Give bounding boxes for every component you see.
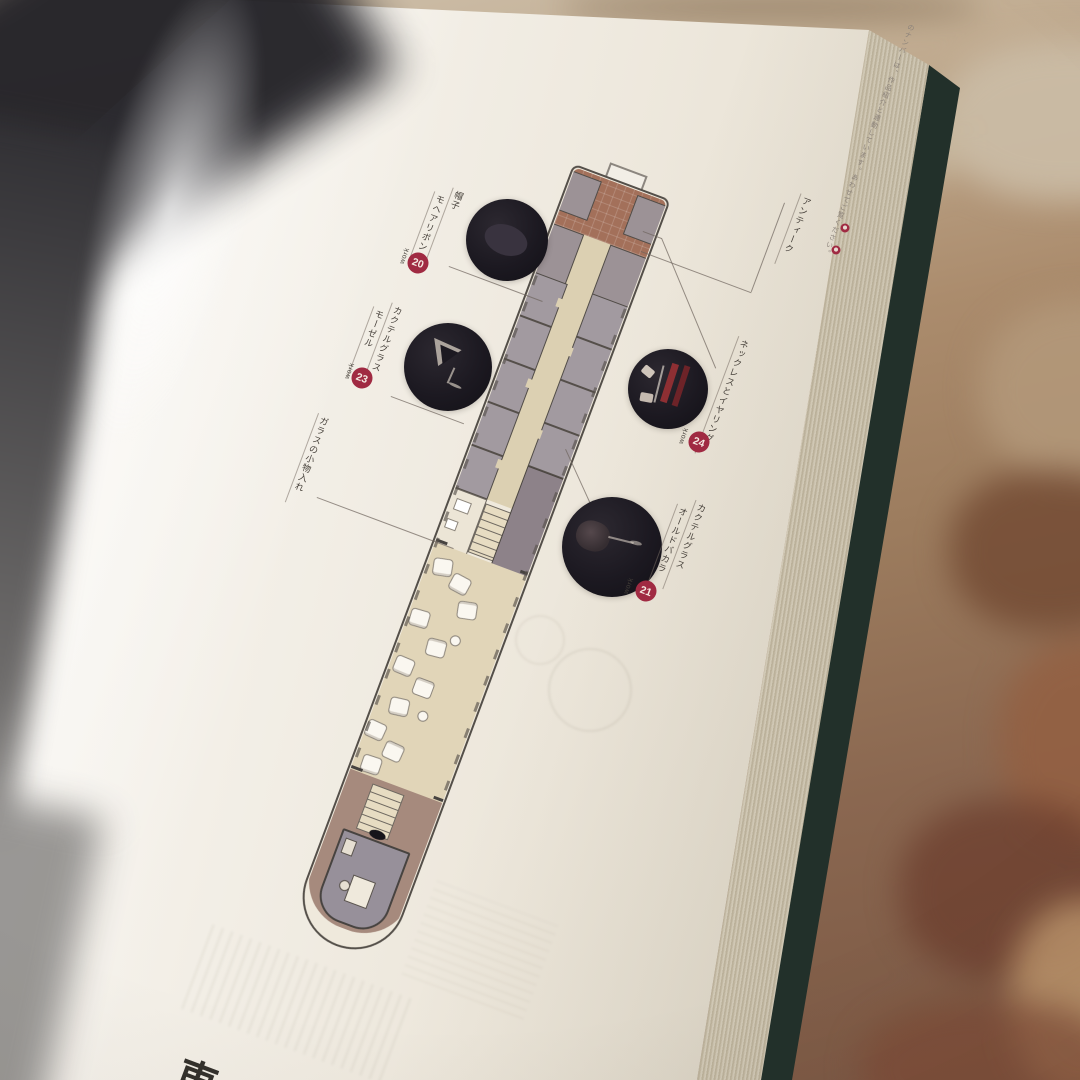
armchair <box>387 696 410 718</box>
photo-inset-martini-glass <box>404 323 492 411</box>
cabinet <box>340 838 357 857</box>
side-table <box>416 709 430 723</box>
armchair <box>424 637 448 659</box>
armchair <box>411 676 436 700</box>
armchair <box>432 557 454 578</box>
legend-work-dot <box>841 224 850 233</box>
armchair <box>456 600 478 621</box>
book-photo-scene: 帽子 モヘアリボン work 20 カクテルグラス モーゼル work 23 ガ… <box>0 0 1080 1080</box>
legend-work-dot <box>832 246 841 255</box>
armchair <box>380 739 406 764</box>
desk <box>344 875 376 910</box>
photo-inset-hat <box>466 199 548 281</box>
photo-inset-necklace <box>628 349 708 429</box>
side-table <box>448 634 462 648</box>
